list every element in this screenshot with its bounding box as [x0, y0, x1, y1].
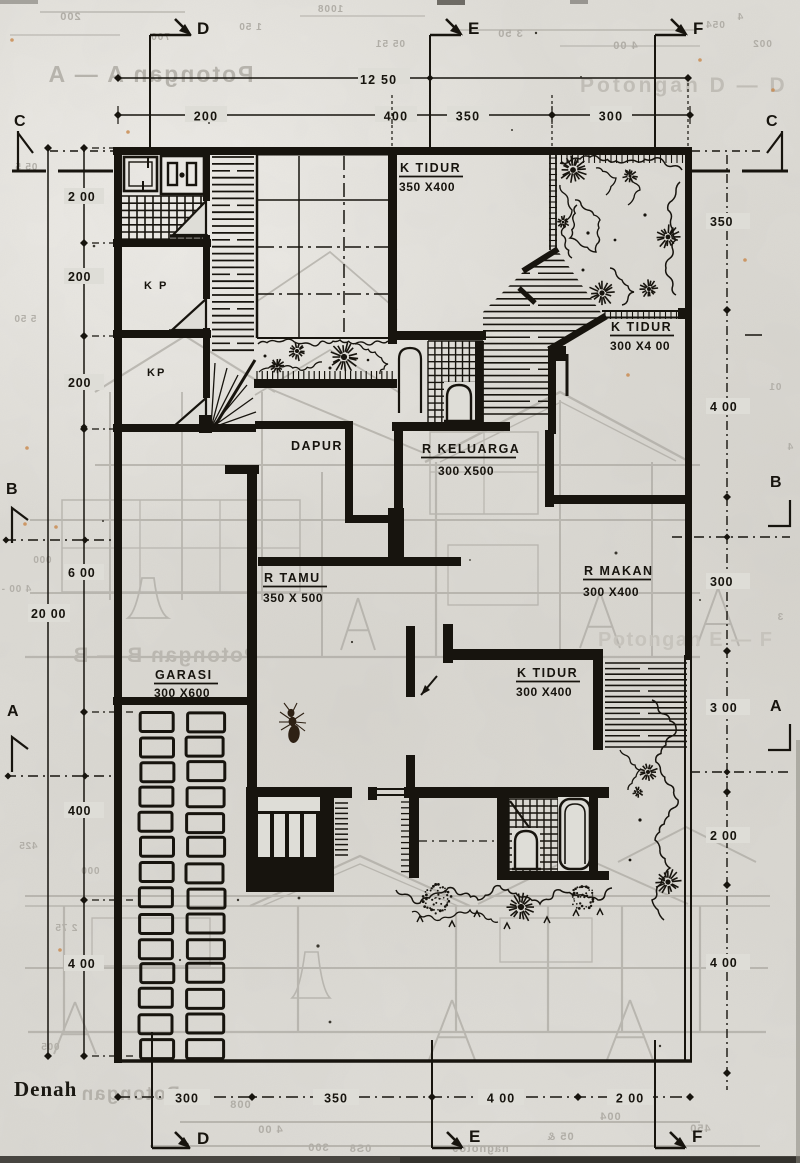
svg-text:F: F	[693, 19, 704, 38]
svg-text:4 00 -: 4 00 -	[1, 584, 31, 595]
svg-text:1 50: 1 50	[238, 22, 261, 33]
svg-text:008: 008	[229, 1099, 250, 1111]
svg-text:002: 002	[752, 39, 772, 50]
svg-text:300 X400: 300 X400	[516, 685, 572, 699]
svg-text:350 X 500: 350 X 500	[263, 591, 323, 605]
svg-text:2 00: 2 00	[710, 829, 738, 843]
svg-text:3: 3	[777, 612, 783, 623]
svg-text:A: A	[7, 703, 19, 720]
svg-text:4 00: 4 00	[710, 400, 738, 414]
svg-text:3 50: 3 50	[497, 28, 522, 40]
svg-text:3 00: 3 00	[710, 701, 738, 715]
svg-text:700: 700	[150, 32, 170, 43]
svg-text:200: 200	[194, 110, 218, 124]
svg-text:425: 425	[18, 841, 37, 852]
svg-text:K P: K P	[144, 280, 168, 292]
svg-text:400: 400	[68, 804, 91, 818]
svg-text:D: D	[197, 1129, 210, 1148]
svg-text:200: 200	[68, 270, 91, 284]
svg-text:2 00: 2 00	[616, 1092, 644, 1106]
svg-text:6 00: 6 00	[68, 566, 96, 580]
svg-text:350: 350	[456, 110, 480, 124]
svg-text:Potongan B — B: Potongan B — B	[72, 644, 259, 667]
svg-text:300 X4 00: 300 X4 00	[610, 339, 670, 353]
svg-text:200: 200	[59, 11, 80, 23]
svg-text:R MAKAN: R MAKAN	[584, 564, 654, 578]
svg-text:KP: KP	[147, 367, 166, 379]
svg-text:A: A	[770, 698, 782, 715]
svg-text:054: 054	[705, 20, 725, 31]
svg-text:300 X600: 300 X600	[154, 686, 210, 700]
svg-text:K TIDUR: K TIDUR	[611, 320, 672, 334]
svg-text:D: D	[197, 19, 210, 38]
svg-text:4 00: 4 00	[257, 1124, 282, 1136]
svg-text:5 50: 5 50	[14, 314, 37, 325]
svg-text:F: F	[692, 1127, 703, 1146]
svg-text:GARASI: GARASI	[155, 668, 213, 682]
svg-text:R KELUARGA: R KELUARGA	[422, 442, 520, 456]
svg-text:R TAMU: R TAMU	[264, 571, 321, 585]
svg-text:DAPUR: DAPUR	[291, 439, 343, 453]
svg-text:1008: 1008	[317, 4, 343, 15]
svg-text:350: 350	[324, 1092, 348, 1106]
svg-text:12 50: 12 50	[360, 73, 397, 87]
svg-text:300: 300	[175, 1092, 199, 1106]
svg-text:4 00: 4 00	[710, 956, 738, 970]
svg-text:05 51: 05 51	[375, 39, 405, 50]
svg-text:01: 01	[769, 382, 782, 393]
svg-text:200: 200	[68, 376, 91, 390]
svg-text:4: 4	[787, 442, 793, 453]
svg-text:E: E	[469, 1127, 481, 1146]
svg-text:4 00: 4 00	[68, 957, 96, 971]
svg-text:20 00: 20 00	[31, 607, 66, 621]
svg-text:K TIDUR: K TIDUR	[400, 161, 461, 175]
svg-text:0S8: 0S8	[349, 1143, 372, 1155]
svg-text:E: E	[468, 19, 480, 38]
svg-text:300: 300	[599, 110, 623, 124]
svg-text:2 75: 2 75	[55, 923, 78, 934]
svg-text:4: 4	[737, 12, 744, 23]
svg-text:K TIDUR: K TIDUR	[517, 666, 578, 680]
svg-text:005: 005	[40, 1042, 59, 1053]
svg-text:B: B	[6, 481, 18, 498]
svg-text:4 00: 4 00	[487, 1092, 515, 1106]
svg-text:300 X400: 300 X400	[583, 585, 639, 599]
svg-text:300 X500: 300 X500	[438, 464, 494, 478]
svg-text:4 00: 4 00	[612, 40, 637, 52]
svg-text:C: C	[766, 113, 778, 130]
svg-text:400: 400	[384, 110, 408, 124]
svg-text:B: B	[770, 474, 782, 491]
svg-text:C: C	[14, 113, 26, 130]
svg-text:Denah: Denah	[14, 1077, 77, 1101]
svg-text:2 00: 2 00	[68, 190, 96, 204]
svg-text:300: 300	[710, 575, 733, 589]
svg-text:05 &: 05 &	[546, 1131, 573, 1143]
svg-text:350 X400: 350 X400	[399, 180, 455, 194]
svg-text:004: 004	[599, 1111, 620, 1123]
svg-text:300: 300	[307, 1142, 328, 1154]
svg-text:350: 350	[710, 215, 733, 229]
